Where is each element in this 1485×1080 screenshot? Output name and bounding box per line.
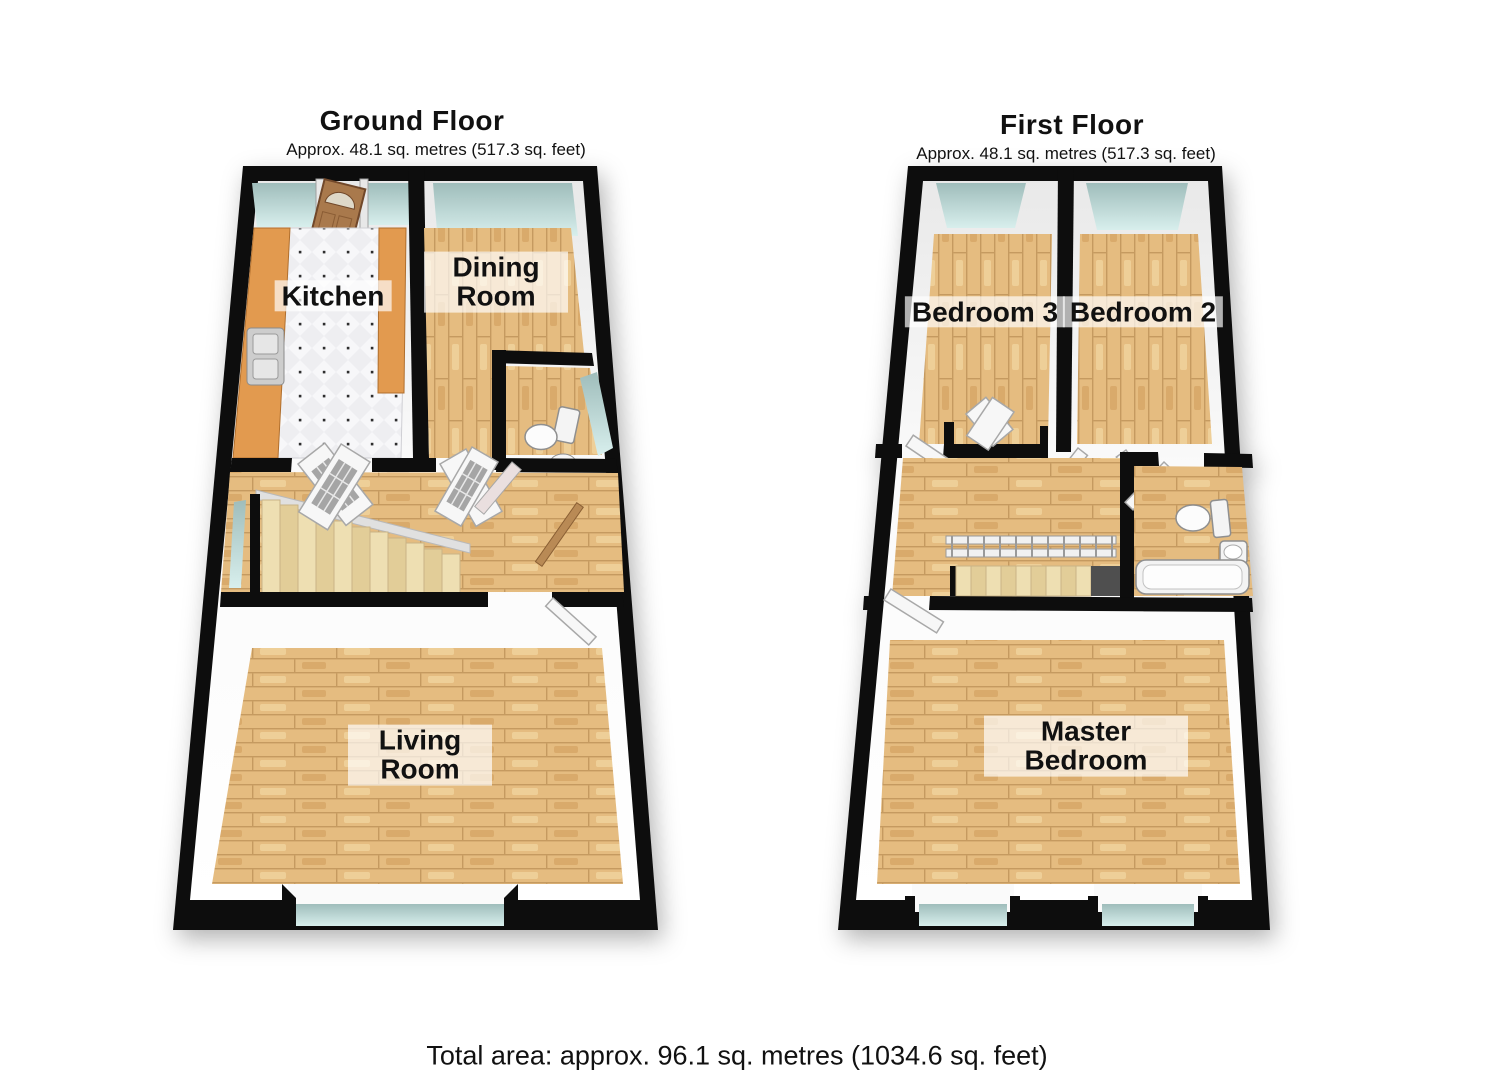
toilet-tank (1210, 499, 1231, 538)
ground-floor-title: Ground Floor (320, 105, 505, 137)
bedroom3-label: Bedroom 3 (905, 296, 1065, 327)
hall-wall (372, 458, 436, 472)
living-room-label: Living Room (348, 725, 492, 786)
toilet-bowl (1176, 505, 1210, 531)
master-bedroom-label: Master Bedroom (984, 716, 1188, 777)
first-floor-subtitle: Approx. 48.1 sq. metres (517.3 sq. feet) (916, 144, 1216, 164)
stair-step (1061, 566, 1076, 596)
bay-wall (1198, 896, 1208, 930)
bathroom-wall (1120, 452, 1134, 602)
bathroom-wall (1204, 453, 1253, 468)
stair-edge (950, 566, 956, 596)
bay-wall (905, 896, 915, 930)
closet-wall (943, 444, 1048, 458)
bedroom3-window-icon (936, 183, 1026, 228)
kitchen-sink-icon (247, 328, 284, 385)
master-wall (929, 596, 1253, 612)
stair-step (388, 538, 406, 594)
stair-step (370, 532, 388, 594)
stair-step (1016, 566, 1031, 596)
master-window-icon (1102, 904, 1194, 926)
stair-step (971, 566, 986, 596)
bathtub-inner (1143, 565, 1242, 589)
stair-step (298, 510, 316, 594)
stair-step (956, 566, 971, 596)
closet-wall (1040, 426, 1048, 458)
ground-floor-subtitle: Approx. 48.1 sq. metres (517.3 sq. feet) (286, 140, 586, 160)
master-wall (863, 596, 878, 610)
bedroom2-label: Bedroom 2 (1063, 296, 1223, 327)
hall-wall (230, 458, 292, 472)
stair-step (442, 554, 460, 594)
sink-bowl (253, 359, 278, 379)
stair-step (424, 549, 442, 594)
living-wall (552, 592, 624, 607)
stair-step (262, 500, 280, 594)
stair-step (1076, 566, 1091, 596)
bay-wall (1088, 896, 1098, 930)
total-area-text: Total area: approx. 96.1 sq. metres (103… (426, 1041, 1047, 1072)
bathtub-icon (1136, 560, 1249, 594)
bedroom2-floor (1077, 234, 1212, 444)
stair-step (406, 543, 424, 594)
stair-step (1001, 566, 1016, 596)
sink-bowl (253, 334, 278, 354)
floorplan-graphics (0, 0, 1485, 1080)
stair-step (1046, 566, 1061, 596)
kitchen-window-icon (252, 183, 318, 227)
master-window-icon (919, 904, 1007, 926)
living-window-icon (294, 904, 506, 926)
ground-floor-plan (173, 166, 658, 930)
stair-step (1031, 566, 1046, 596)
bedroom2-window-icon (1086, 183, 1188, 230)
stair-step (334, 521, 352, 594)
bay-wall (1010, 896, 1020, 930)
toilet-bowl (525, 425, 557, 450)
kitchen-window-icon (366, 183, 413, 225)
closet-wall (944, 422, 954, 458)
stair-step (986, 566, 1001, 596)
dining-room-label: Dining Room (424, 252, 568, 313)
first-floor-plan (838, 166, 1270, 930)
living-wall (220, 592, 488, 607)
sink-basin (1224, 545, 1242, 559)
staircase (950, 566, 1120, 596)
wc-wall (492, 350, 506, 470)
stair-step (352, 527, 370, 594)
kitchen-label: Kitchen (275, 280, 392, 311)
stairwell-void (1091, 566, 1120, 596)
stair-newel (250, 494, 260, 594)
landing-wall (875, 444, 902, 458)
first-floor-title: First Floor (1000, 109, 1144, 141)
stair-step (280, 505, 298, 594)
